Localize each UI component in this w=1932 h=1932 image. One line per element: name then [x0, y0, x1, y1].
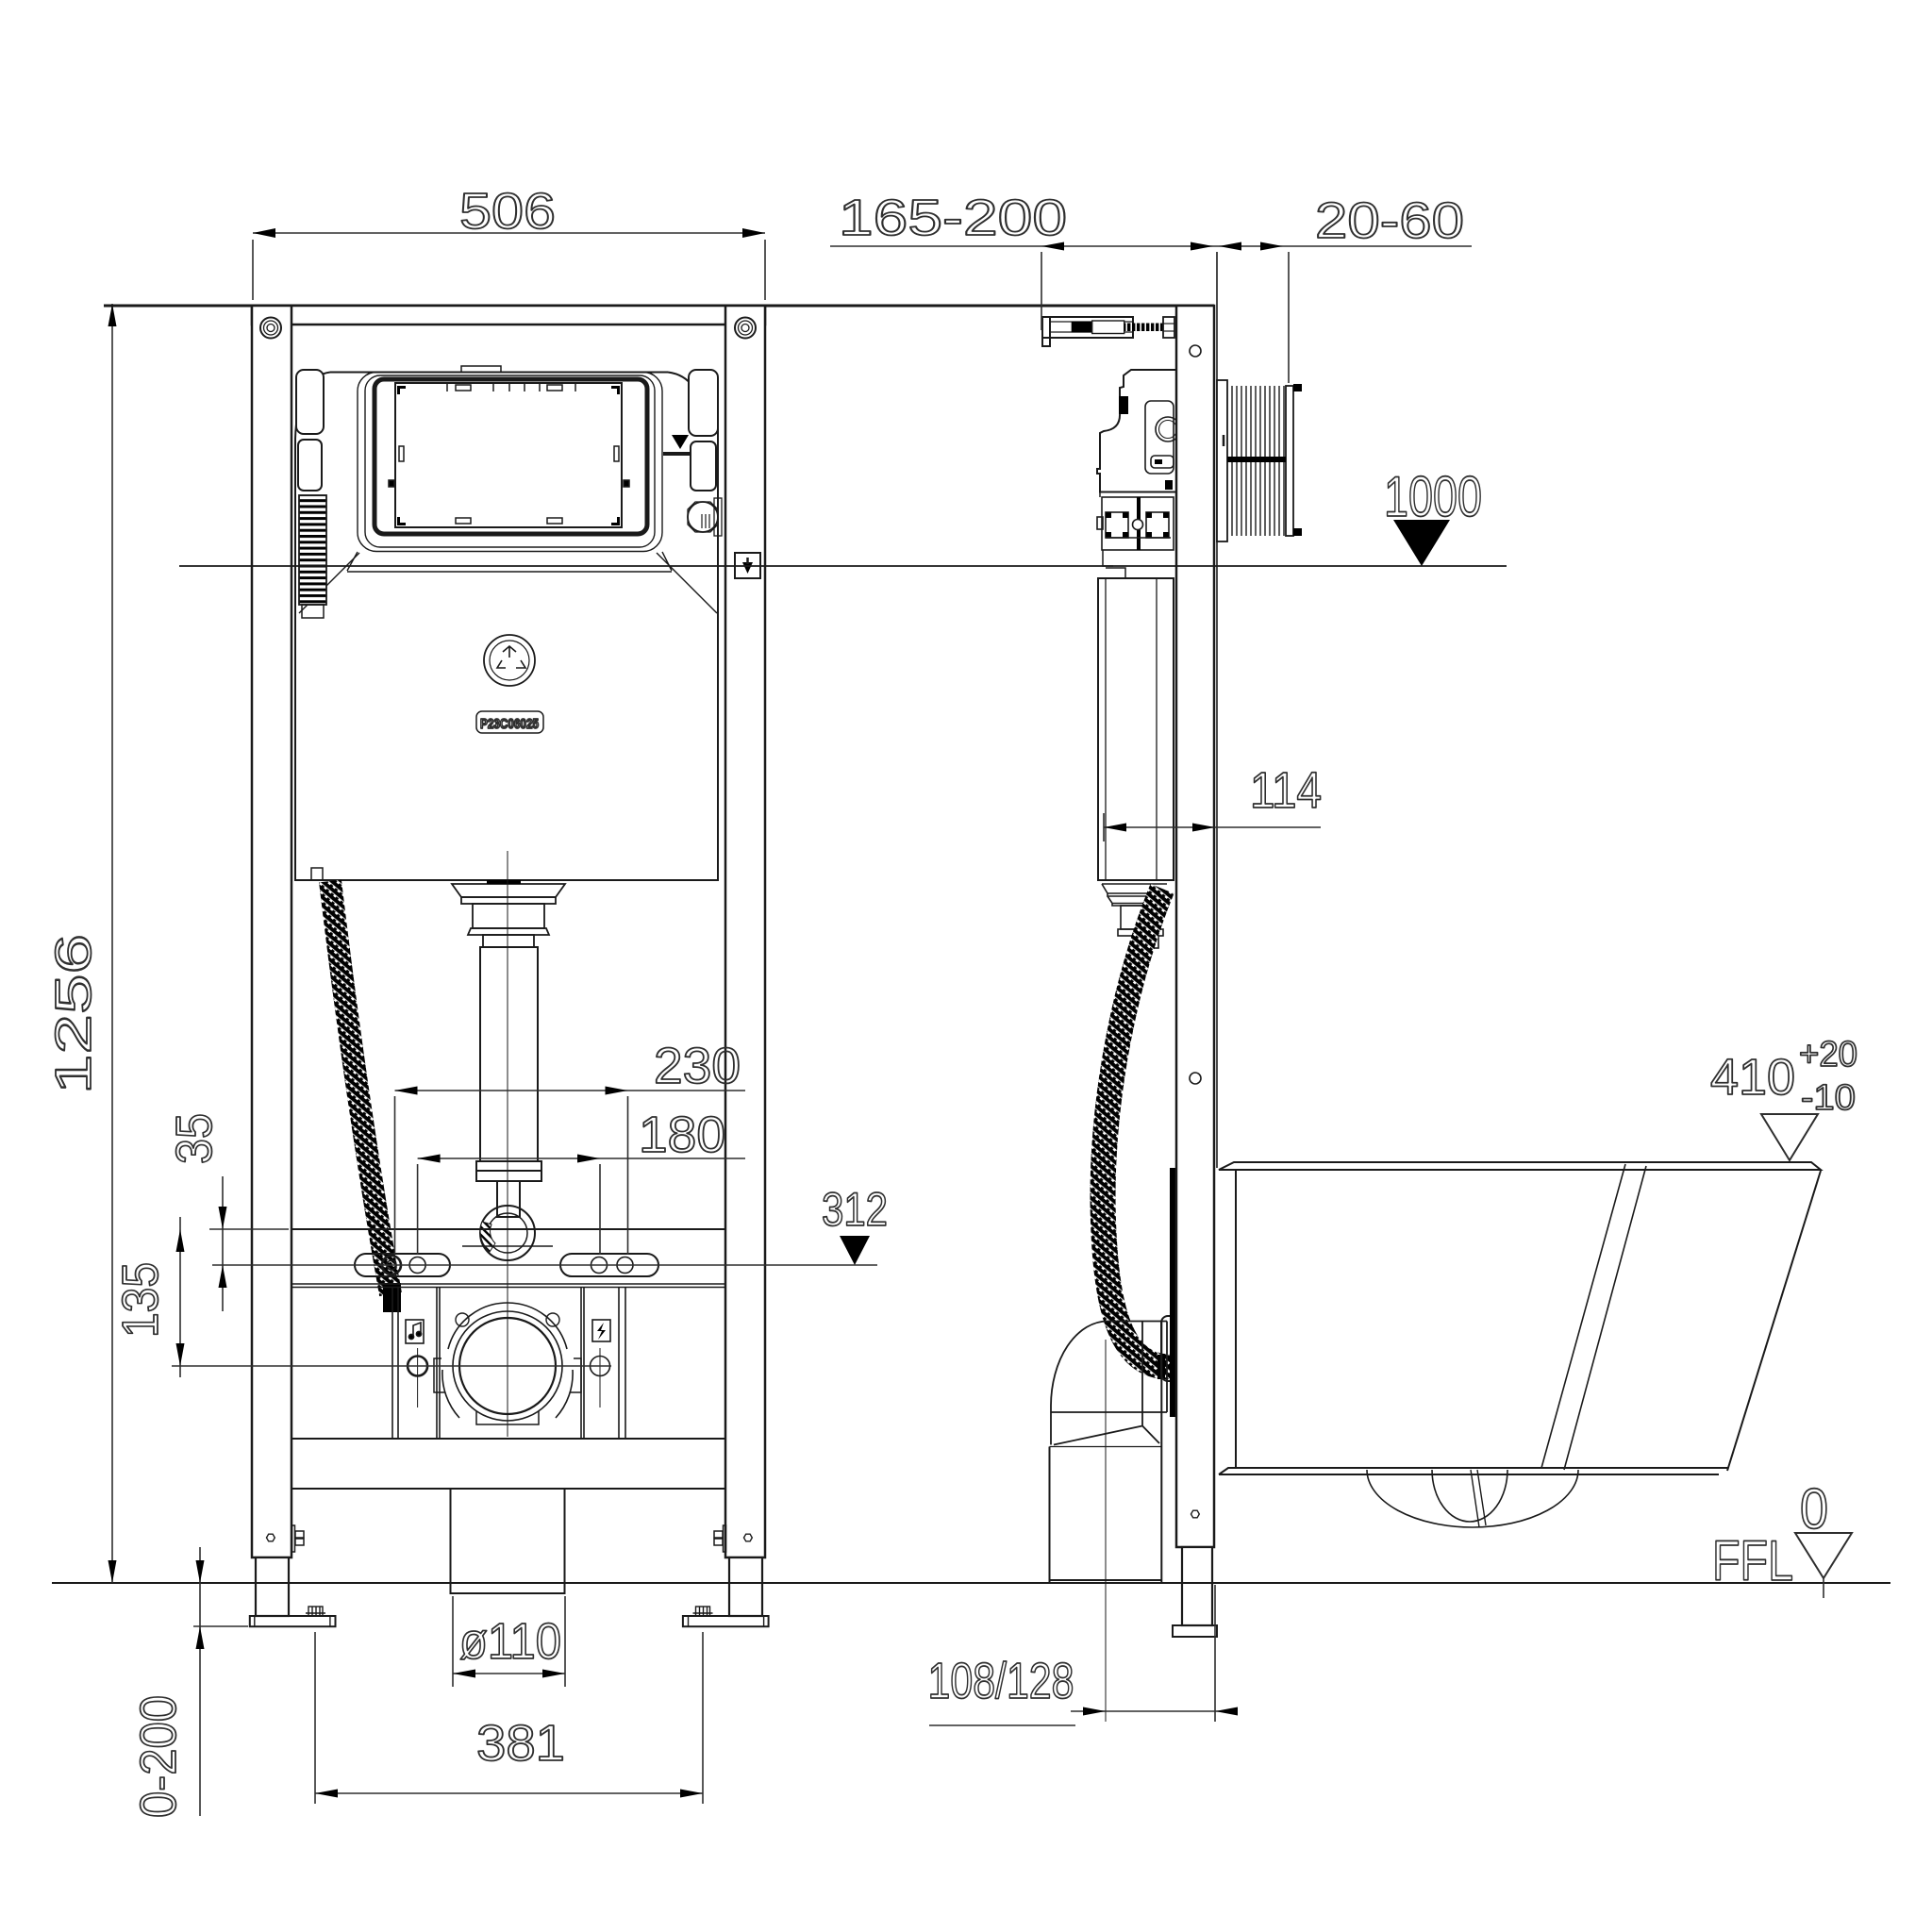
- svg-text:0-200: 0-200: [130, 1695, 187, 1818]
- svg-text:+20: +20: [1799, 1035, 1857, 1074]
- svg-text:180: 180: [639, 1107, 725, 1163]
- svg-text:410: 410: [1710, 1049, 1795, 1106]
- svg-text:FFL: FFL: [1712, 1529, 1793, 1592]
- svg-text:0: 0: [1800, 1477, 1828, 1541]
- svg-text:135: 135: [112, 1262, 169, 1338]
- svg-text:P23C06025: P23C06025: [480, 716, 539, 732]
- svg-text:312: 312: [822, 1183, 888, 1236]
- svg-text:20-60: 20-60: [1315, 192, 1464, 249]
- svg-text:108/128: 108/128: [928, 1653, 1074, 1709]
- svg-text:ø110: ø110: [459, 1613, 561, 1670]
- svg-text:114: 114: [1250, 762, 1322, 819]
- svg-text:-10: -10: [1801, 1078, 1856, 1118]
- svg-text:1256: 1256: [45, 934, 102, 1094]
- svg-text:506: 506: [459, 183, 556, 240]
- svg-text:35: 35: [166, 1113, 223, 1164]
- svg-text:230: 230: [654, 1038, 741, 1094]
- svg-text:1000: 1000: [1384, 465, 1482, 528]
- svg-text:165-200: 165-200: [839, 190, 1067, 246]
- svg-text:381: 381: [476, 1715, 565, 1772]
